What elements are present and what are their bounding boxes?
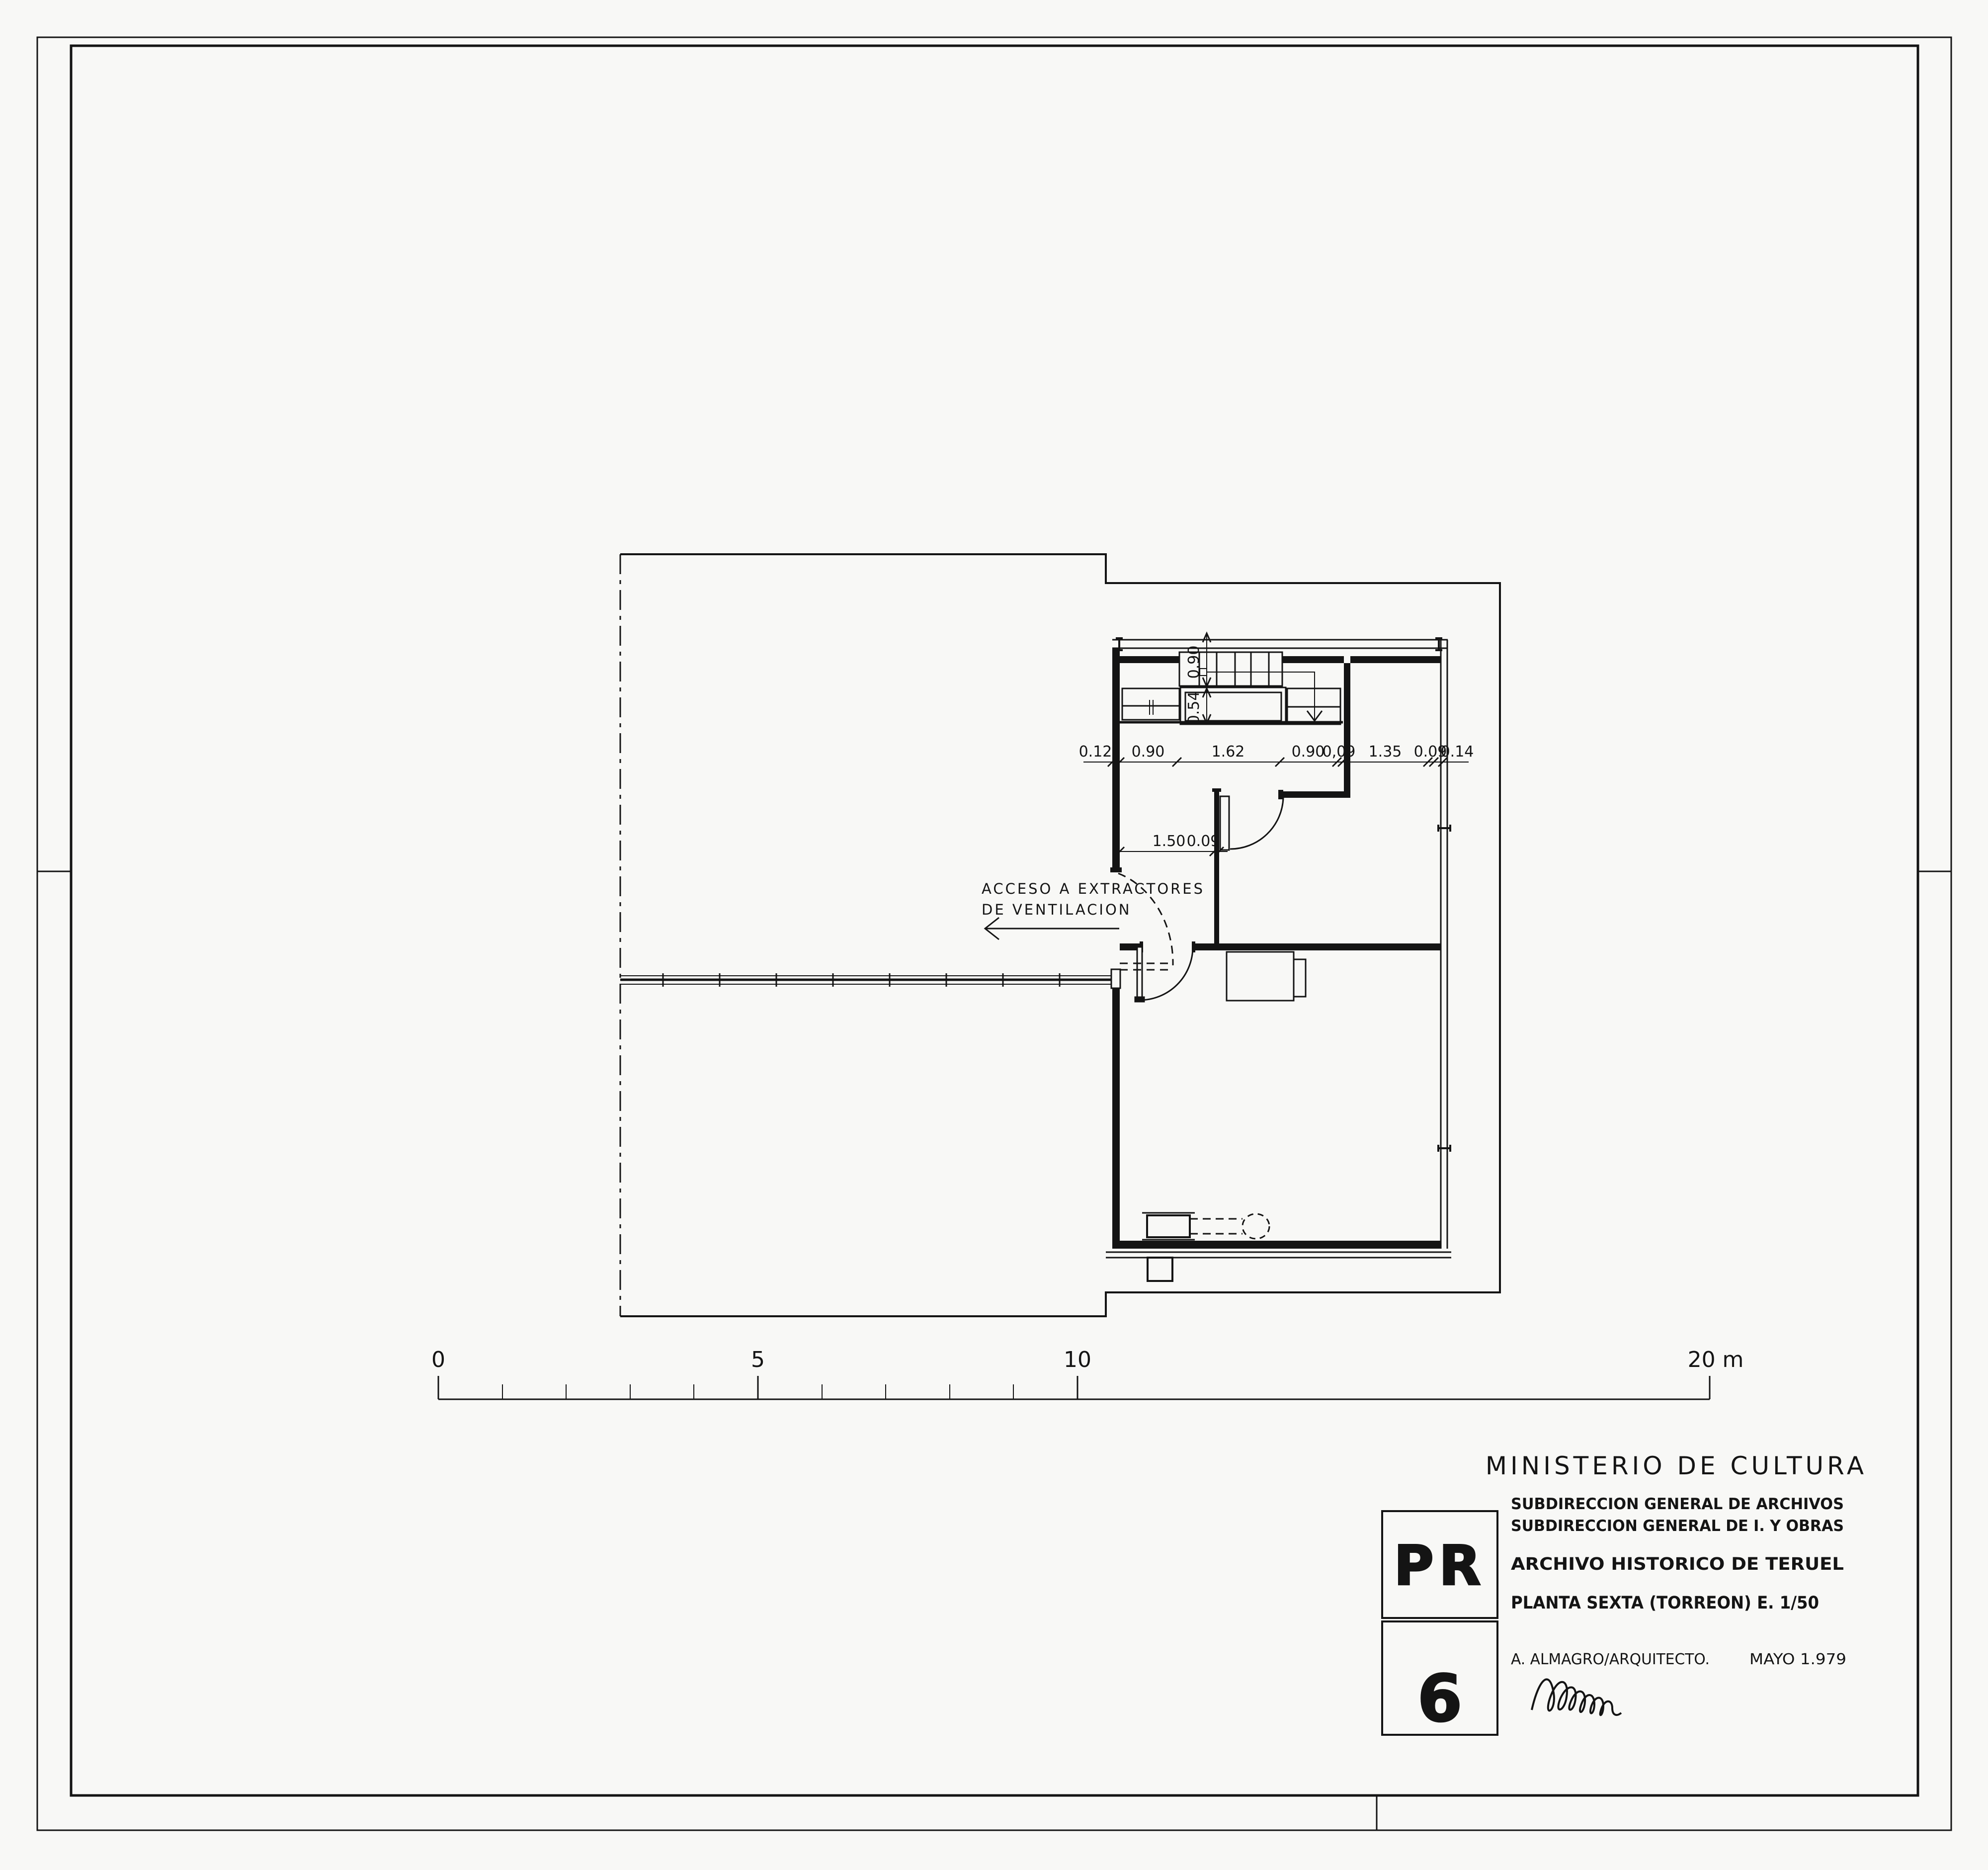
stair-cupboard-left — [1122, 688, 1179, 720]
acceso-annotation: ACCESO A EXTRACTORES DE VENTILACION — [982, 880, 1205, 939]
door-bottom-room — [1135, 947, 1193, 1002]
dim-label: 0.14 — [1441, 743, 1474, 761]
terrace-outline — [620, 554, 1500, 1316]
dim-label: 0.12 — [1079, 743, 1112, 761]
scale-label-10: 10 — [1064, 1347, 1091, 1372]
dim-label: 0.54 — [1185, 691, 1203, 725]
dimension-hall: 1.50 0.09 — [1115, 833, 1228, 856]
acceso-text-line2: DE VENTILACION — [982, 901, 1131, 918]
stamp-6-glyph: 6 — [1417, 1661, 1462, 1736]
dimension-stair-vertical: 0.90 0.54 — [1185, 633, 1211, 724]
scale-label-20m: 20 m — [1688, 1347, 1744, 1372]
stamp-pr-glyph: PR — [1394, 1534, 1486, 1598]
door-right-zone — [1220, 796, 1283, 850]
stair-direction-line — [1200, 669, 1322, 721]
scale-bar: 0 5 10 20 m — [431, 1347, 1743, 1399]
ministry-title: MINISTERIO DE CULTURA — [1486, 1451, 1867, 1480]
drain-box — [1148, 1258, 1172, 1281]
scale-label-5: 5 — [751, 1347, 765, 1372]
scale-label-0: 0 — [431, 1347, 445, 1372]
dim-label: 1.62 — [1212, 743, 1245, 761]
dim-label: 1.35 — [1369, 743, 1402, 761]
walls — [1110, 648, 1440, 1249]
wall-sill-lines — [1106, 994, 1451, 1258]
sheet-title: PLANTA SEXTA (TORREON) E. 1/50 — [1511, 1593, 1819, 1613]
architect-credit: A. ALMAGRO/ARQUITECTO. — [1511, 1651, 1710, 1668]
dim-label: 0,09 — [1323, 743, 1356, 761]
dim-label: 0.90 — [1185, 646, 1203, 679]
department-line1: SUBDIRECCION GENERAL DE ARCHIVOS — [1511, 1495, 1844, 1513]
plan-canvas: 0.12 0.90 1.62 0.90 0,09 1.35 0.09 0.14 … — [0, 0, 1988, 1870]
date-label: MAYO 1.979 — [1749, 1651, 1846, 1668]
architect-signature — [1532, 1679, 1621, 1715]
title-block: MINISTERIO DE CULTURA SUBDIRECCION GENER… — [1382, 1451, 1867, 1736]
project-title: ARCHIVO HISTORICO DE TERUEL — [1511, 1554, 1844, 1574]
dimension-chain: 0.12 0.90 1.62 0.90 0,09 1.35 0.09 0.14 — [1079, 743, 1474, 766]
terrace-railing — [620, 969, 1120, 988]
equipment-unit — [1227, 952, 1306, 1001]
dim-label: 0.90 — [1132, 743, 1165, 761]
department-line2: SUBDIRECCION GENERAL DE I. Y OBRAS — [1511, 1517, 1844, 1535]
dim-label: 0.09 — [1187, 833, 1220, 850]
dim-label: 0.90 — [1292, 743, 1325, 761]
dim-label: 1.50 — [1153, 833, 1186, 850]
acceso-text-line1: ACCESO A EXTRACTORES — [982, 880, 1205, 897]
acceso-arrow-icon — [985, 918, 1119, 939]
drawing-sheet: 0.12 0.90 1.62 0.90 0,09 1.35 0.09 0.14 … — [0, 0, 1988, 1870]
